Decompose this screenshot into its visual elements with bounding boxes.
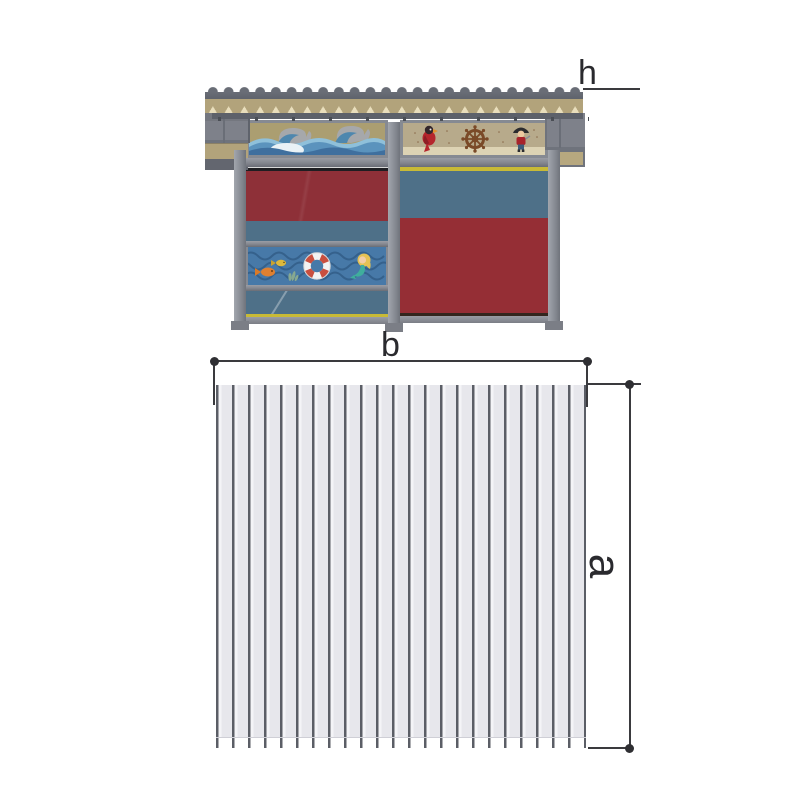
dimension-line-b <box>213 360 588 362</box>
lifebuoy-icon <box>304 253 331 280</box>
blue-panel-lower-left <box>246 291 388 314</box>
ocean-waves-art-panel <box>246 120 388 158</box>
dimension-label-b: b <box>381 328 400 362</box>
pirate-icon <box>513 128 530 153</box>
post-foot-left <box>231 321 249 330</box>
frame-post-center <box>388 122 400 325</box>
horizontal-rail <box>246 158 388 167</box>
red-panel-left <box>246 171 388 221</box>
scratch-mark <box>269 291 290 314</box>
dimension-dot-b-left <box>210 357 219 366</box>
dimension-label-a: a <box>582 554 626 578</box>
red-panel-right <box>400 218 548 313</box>
dimension-dot-b-right <box>583 357 592 366</box>
roof-fascia <box>205 99 583 113</box>
diagram-page: h b a <box>0 0 800 800</box>
base-rail-right <box>400 316 548 323</box>
frame-post-left <box>234 150 246 323</box>
sea-art-panel <box>246 247 388 285</box>
fascia-triangle-pattern <box>205 106 583 113</box>
blue-band-left <box>246 221 388 241</box>
pirate-art-panel <box>400 120 548 158</box>
base-rail-left <box>246 317 388 324</box>
parrot-icon <box>423 126 439 152</box>
corrugated-roof-ridge <box>205 86 583 99</box>
dimension-dot-a-bottom <box>625 744 634 753</box>
dimension-line-a <box>629 384 631 749</box>
dimension-tick-b-left <box>213 361 215 405</box>
post-foot-right <box>545 321 563 330</box>
horizontal-rail <box>246 285 388 291</box>
pirate-art <box>403 123 545 155</box>
horizontal-rail <box>400 158 548 167</box>
horizontal-rail <box>246 241 388 247</box>
ship-wheel-icon <box>461 125 488 152</box>
sea-art <box>248 247 386 285</box>
corrugated-panel-rib-ends <box>216 738 586 748</box>
frame-post-right <box>548 150 560 323</box>
corrugated-panel-plan <box>216 385 586 738</box>
dimension-label-h: h <box>578 56 597 90</box>
ocean-waves-art <box>249 123 385 155</box>
roof-underside-shadow <box>212 113 583 119</box>
blue-panel-right <box>400 171 548 218</box>
dimension-dot-a-top <box>625 380 634 389</box>
